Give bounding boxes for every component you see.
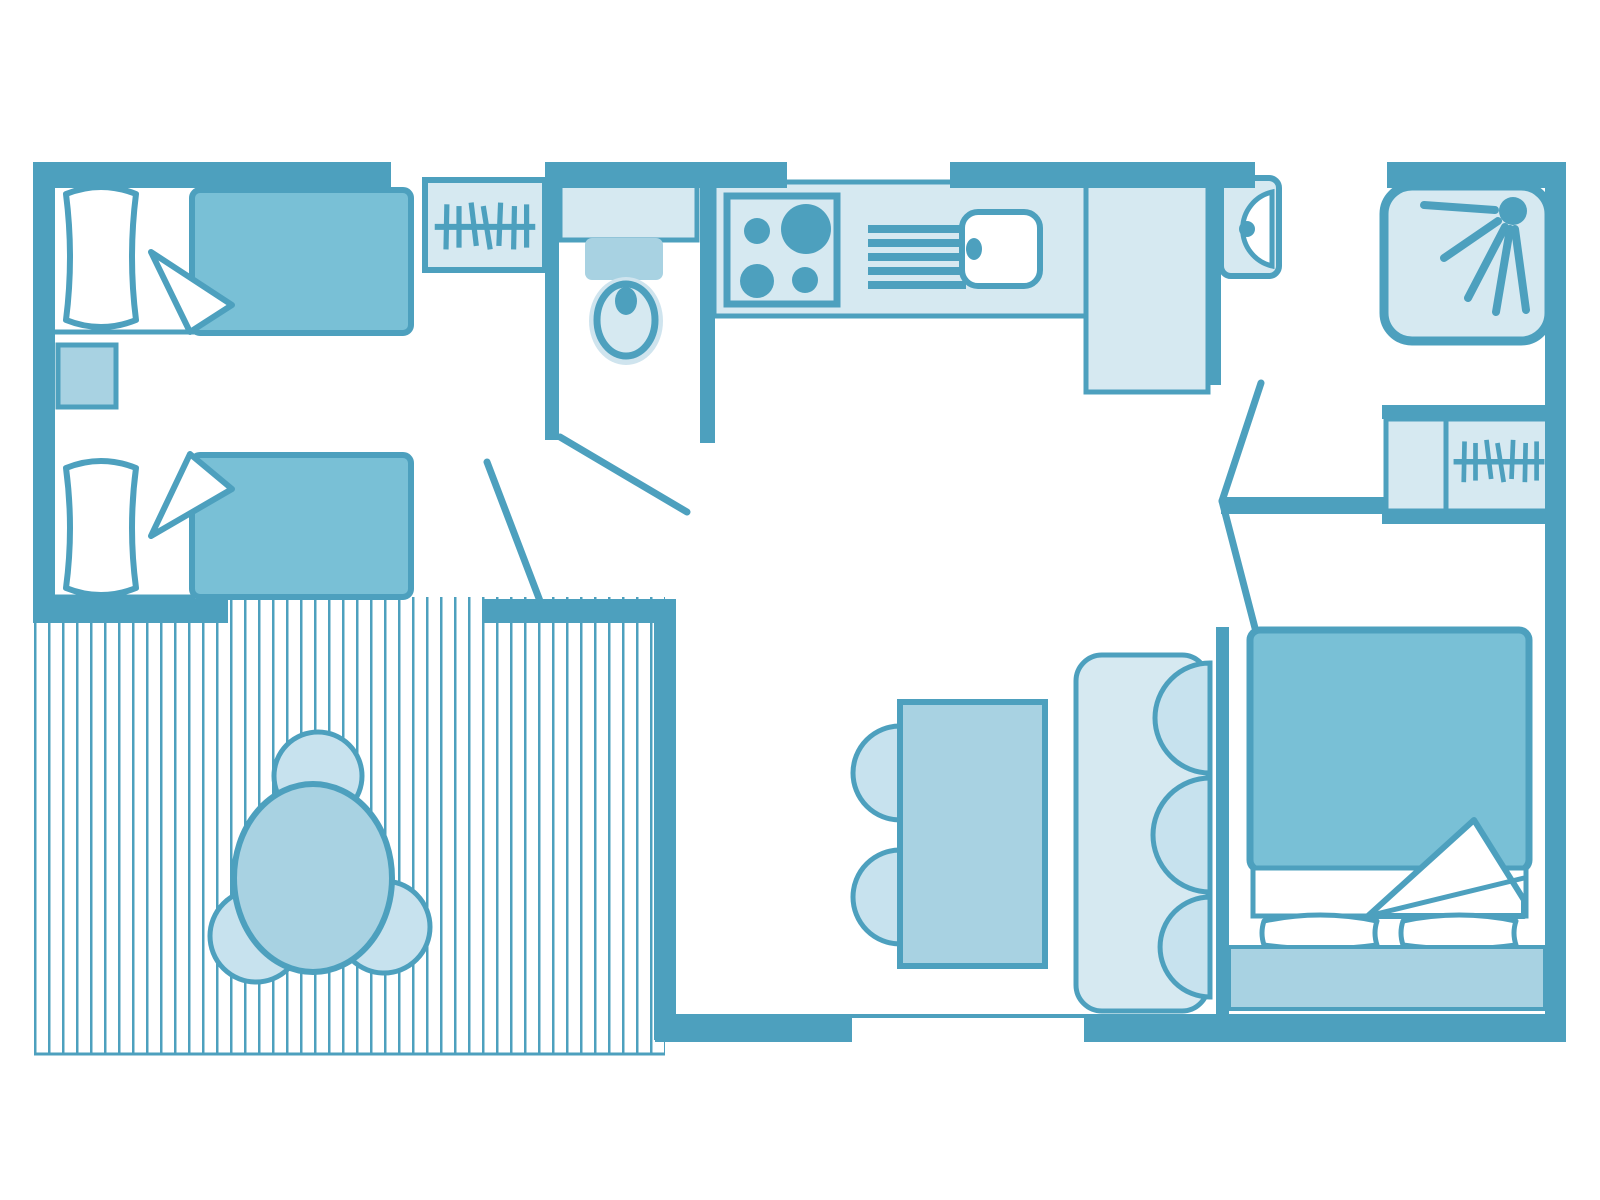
vent-bar-2 — [868, 239, 966, 247]
dining-table — [900, 702, 1045, 966]
double-bed-pillow-right — [1401, 915, 1516, 949]
wall-terrace-top-right — [483, 599, 676, 623]
burner-bottom-left — [740, 264, 774, 298]
vent-bar-3 — [868, 253, 966, 261]
dining-chair-top — [853, 726, 900, 820]
floorplan-svg — [0, 0, 1600, 1200]
entry-threshold-line — [852, 1014, 1084, 1018]
bathroom-door-swing-upper — [1222, 383, 1261, 501]
bathroom-door-swing-lower — [1222, 501, 1255, 628]
wall-right — [1545, 162, 1566, 1040]
double-bed-blanket — [1250, 630, 1529, 870]
dining-chair-bottom — [853, 850, 900, 944]
vent-bar-1 — [868, 225, 966, 233]
single-bed-2-blanket — [192, 455, 411, 597]
wall-top-wc-kitchen — [545, 162, 787, 188]
burner-top-left — [744, 218, 770, 244]
burner-bottom-right — [792, 267, 818, 293]
fridge-cabinet — [1086, 182, 1208, 392]
single-bed-1-pillow — [66, 187, 136, 327]
wall-terrace-top-left — [33, 599, 228, 623]
toilet-tank — [585, 238, 663, 280]
vent-bar-4 — [868, 267, 966, 275]
wall-bathroom-bottom — [1382, 405, 1554, 419]
wall-hall-bedroom — [1221, 497, 1388, 514]
wall-wardrobe-2-bottom — [1382, 510, 1554, 524]
wall-master-bedroom-left — [1216, 627, 1229, 1040]
wall-fridge-right — [1208, 182, 1221, 385]
wall-bottom-right — [1084, 1014, 1566, 1042]
wc-door-swing — [560, 437, 687, 512]
shower-spray-1 — [1424, 205, 1495, 210]
wall-bottom-living-left — [655, 1014, 852, 1042]
toilet-cistern — [560, 183, 697, 240]
double-bed-pillow-left — [1262, 915, 1377, 949]
sink-faucet — [966, 238, 982, 260]
toilet-flush-button — [615, 287, 637, 315]
shower-head-icon — [1499, 197, 1527, 225]
bedroom-door-swing — [487, 462, 540, 601]
plan-shapes — [33, 162, 1566, 1055]
terrace-table — [234, 784, 392, 972]
nightstand — [58, 345, 116, 407]
wall-wc-right — [700, 186, 715, 443]
burner-top-right — [781, 204, 831, 254]
wall-left — [33, 162, 55, 623]
mobile-home-floorplan — [0, 0, 1600, 1200]
wall-top-bathroom — [1387, 162, 1566, 188]
wall-top-bedroom — [33, 162, 391, 188]
wall-wc-left — [545, 186, 559, 440]
double-bed-headboard — [1229, 947, 1545, 1009]
wall-terrace-divider — [654, 620, 676, 1040]
single-bed-2-pillow — [66, 461, 136, 595]
washbasin-drain — [1239, 221, 1255, 237]
vent-bar-5 — [868, 281, 966, 289]
